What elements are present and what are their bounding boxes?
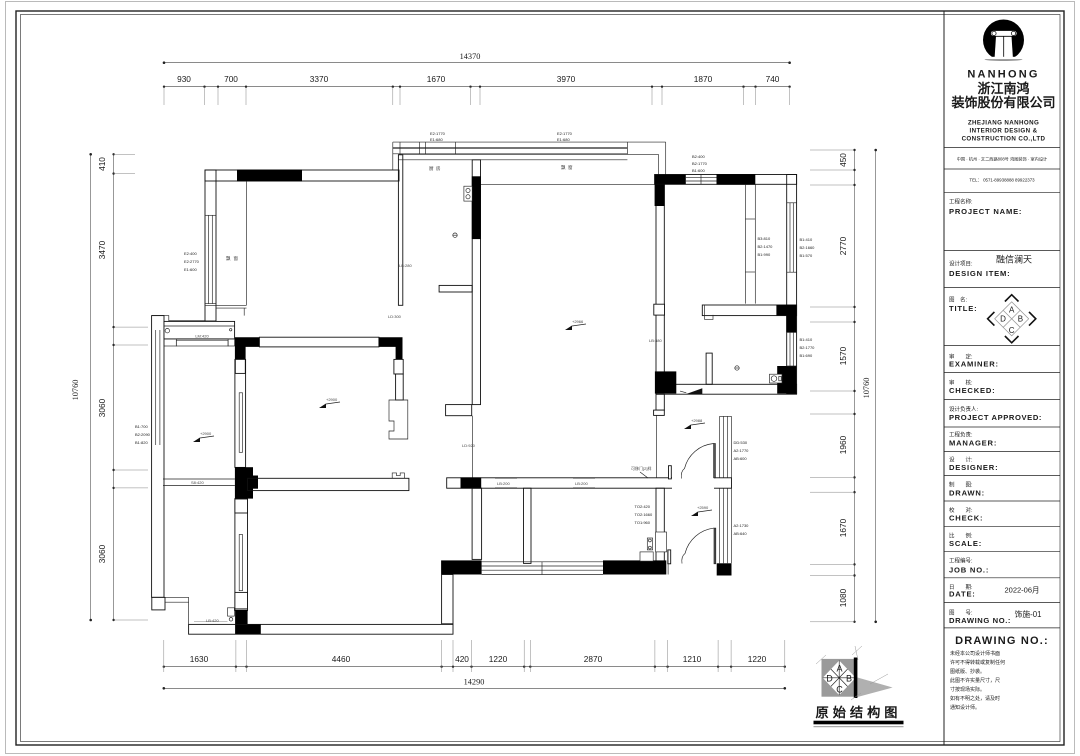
svg-text:450: 450 <box>838 153 848 167</box>
svg-text:LB:420: LB:420 <box>206 618 219 623</box>
svg-text:A: A <box>1009 306 1015 315</box>
svg-text:3970: 3970 <box>557 74 576 84</box>
svg-text:930: 930 <box>177 74 191 84</box>
svg-text:D: D <box>826 674 833 684</box>
svg-text:厨: 厨 <box>429 166 434 171</box>
svg-text:TITLE:: TITLE: <box>949 304 977 313</box>
svg-text:通知设计师。: 通知设计师。 <box>950 704 980 711</box>
svg-text:TO1:960: TO1:960 <box>635 520 651 525</box>
svg-text:NANHONG: NANHONG <box>967 69 1039 81</box>
svg-text:JOB NO.:: JOB NO.: <box>949 566 989 575</box>
svg-text:窗: 窗 <box>234 255 239 262</box>
svg-text:B1:690: B1:690 <box>800 353 813 358</box>
svg-text:B2:400: B2:400 <box>692 154 705 159</box>
svg-text:装饰股份有限公司: 装饰股份有限公司 <box>950 95 1055 110</box>
svg-text:1630: 1630 <box>190 654 209 664</box>
svg-text:+2900: +2900 <box>200 431 212 436</box>
svg-text:1220: 1220 <box>748 654 767 664</box>
svg-text:TO2:1660: TO2:1660 <box>635 512 653 517</box>
svg-text:EXAMINER:: EXAMINER: <box>949 360 999 369</box>
svg-text:14370: 14370 <box>460 52 481 61</box>
svg-text:AB:600: AB:600 <box>734 456 748 461</box>
svg-text:DESIGN ITEM:: DESIGN ITEM: <box>949 269 1011 278</box>
svg-text:DRAWN:: DRAWN: <box>949 489 985 498</box>
svg-text:B1:990: B1:990 <box>758 252 771 257</box>
svg-text:PROJECT APPROVED:: PROJECT APPROVED: <box>949 413 1042 422</box>
svg-text:DATE:: DATE: <box>949 590 976 599</box>
svg-text:+2900: +2900 <box>326 397 338 402</box>
svg-text:原始结构图: 原始结构图 <box>816 704 902 720</box>
svg-text:浙江南鸿: 浙江南鸿 <box>977 81 1029 96</box>
svg-text:B2:2090: B2:2090 <box>135 432 151 437</box>
svg-text:4460: 4460 <box>332 654 351 664</box>
svg-text:图纸版、抄袭。: 图纸版、抄袭。 <box>950 668 985 675</box>
svg-text:1960: 1960 <box>838 435 848 454</box>
svg-text:LB:380: LB:380 <box>649 338 662 343</box>
svg-text:此图不许实量尺寸，尺: 此图不许实量尺寸，尺 <box>950 677 1000 684</box>
svg-text:设计负责人:: 设计负责人: <box>949 405 979 413</box>
svg-text:B2:1770: B2:1770 <box>692 161 708 166</box>
svg-text:E2:400: E2:400 <box>184 251 197 256</box>
svg-text:E1:600: E1:600 <box>184 267 197 272</box>
svg-text:DRAWING NO.:: DRAWING NO.: <box>949 616 1011 625</box>
svg-text:700: 700 <box>224 74 238 84</box>
svg-text:B2:1660: B2:1660 <box>800 245 816 250</box>
svg-text:中国 · 杭州 · 文二西路808号 鸿图装饰 · 室内设计: 中国 · 杭州 · 文二西路808号 鸿图装饰 · 室内设计 <box>957 156 1048 163</box>
svg-text:+2988: +2988 <box>691 418 703 423</box>
svg-text:14290: 14290 <box>464 678 485 687</box>
svg-text:B: B <box>846 674 852 684</box>
svg-text:B1:570: B1:570 <box>800 253 813 258</box>
svg-text:可移门[2]样: 可移门[2]样 <box>631 465 651 471</box>
svg-text:B3:810: B3:810 <box>758 236 771 241</box>
svg-text:B2:1470: B2:1470 <box>758 244 774 249</box>
svg-text:工程负责:: 工程负责: <box>949 431 973 439</box>
svg-text:410: 410 <box>97 157 107 171</box>
svg-text:A2:1770: A2:1770 <box>734 448 750 453</box>
svg-text:窗: 窗 <box>568 164 573 171</box>
svg-text:+2590: +2590 <box>697 505 709 510</box>
svg-text:工程名称:: 工程名称: <box>949 198 973 206</box>
svg-text:1870: 1870 <box>694 74 713 84</box>
svg-text:3370: 3370 <box>310 74 329 84</box>
svg-text:10760: 10760 <box>862 378 871 399</box>
svg-text:B1:820: B1:820 <box>135 440 148 445</box>
svg-text:DESIGNER:: DESIGNER: <box>949 463 998 472</box>
svg-text:3060: 3060 <box>97 398 107 417</box>
svg-text:2770: 2770 <box>838 236 848 255</box>
svg-text:B2:1770: B2:1770 <box>800 345 816 350</box>
svg-text:许可不得转载或复制任何: 许可不得转载或复制任何 <box>950 659 1005 666</box>
svg-text:+2966: +2966 <box>572 319 584 324</box>
svg-text:AB:640: AB:640 <box>734 531 748 536</box>
svg-text:DD:530: DD:530 <box>734 440 748 445</box>
svg-text:TO2:420: TO2:420 <box>635 504 651 509</box>
svg-text:1670: 1670 <box>838 518 848 537</box>
svg-text:3060: 3060 <box>97 544 107 563</box>
svg-text:SCALE:: SCALE: <box>949 539 982 548</box>
svg-text:E1:680: E1:680 <box>430 137 443 142</box>
svg-text:CONSTRUCTION CO.,LTD: CONSTRUCTION CO.,LTD <box>962 136 1046 143</box>
svg-text:CHECK:: CHECK: <box>949 514 983 523</box>
svg-text:制 图:: 制 图: <box>949 481 973 489</box>
svg-text:E1:680: E1:680 <box>557 137 570 142</box>
svg-text:B1:700: B1:700 <box>135 424 148 429</box>
svg-text:1220: 1220 <box>489 654 508 664</box>
svg-text:D: D <box>1000 315 1006 324</box>
svg-text:PROJECT NAME:: PROJECT NAME: <box>949 207 1022 216</box>
svg-text:LB:200: LB:200 <box>575 481 588 486</box>
svg-text:E2:2770: E2:2770 <box>184 259 200 264</box>
svg-text:饰施-01: 饰施-01 <box>1015 609 1042 619</box>
svg-text:B1:410: B1:410 <box>800 337 813 342</box>
svg-text:1670: 1670 <box>427 74 446 84</box>
svg-text:E2:1770: E2:1770 <box>430 131 446 136</box>
svg-text:1080: 1080 <box>838 588 848 607</box>
svg-text:3470: 3470 <box>97 240 107 259</box>
svg-text:寸按现场实际。: 寸按现场实际。 <box>950 686 985 693</box>
svg-text:E2:1770: E2:1770 <box>557 131 573 136</box>
svg-text:TEL： 0571-89938888 89922373: TEL： 0571-89938888 89922373 <box>969 178 1035 183</box>
svg-text:工程编号:: 工程编号: <box>949 557 973 565</box>
svg-text:设计项目:: 设计项目: <box>949 260 973 268</box>
svg-text:LM:420: LM:420 <box>195 334 209 339</box>
svg-text:CHECKED:: CHECKED: <box>949 386 995 395</box>
svg-text:如有不明之处，请及时: 如有不明之处，请及时 <box>950 695 1000 702</box>
svg-text:LD:920: LD:920 <box>462 443 476 448</box>
svg-text:ZHEJIANG NANHONG: ZHEJIANG NANHONG <box>968 120 1039 127</box>
svg-text:C: C <box>1009 326 1015 335</box>
svg-text:DRAWING NO.:: DRAWING NO.: <box>955 635 1049 647</box>
svg-text:房: 房 <box>436 165 441 172</box>
svg-text:S8:420: S8:420 <box>191 480 204 485</box>
svg-text:INTERIOR DESIGN &: INTERIOR DESIGN & <box>970 128 1038 135</box>
svg-text:图 名:: 图 名: <box>949 296 968 304</box>
svg-text:2022-06月: 2022-06月 <box>1004 586 1039 595</box>
svg-text:融信澜天: 融信澜天 <box>996 254 1032 265</box>
svg-text:B1:600: B1:600 <box>692 168 705 173</box>
svg-text:LB:280: LB:280 <box>399 263 412 268</box>
svg-text:B1:410: B1:410 <box>800 237 813 242</box>
svg-text:1210: 1210 <box>683 654 702 664</box>
svg-text:LD:300: LD:300 <box>388 314 402 319</box>
svg-text:MANAGER:: MANAGER: <box>949 439 997 448</box>
svg-text:10760: 10760 <box>71 380 80 401</box>
svg-text:2870: 2870 <box>584 654 603 664</box>
svg-text:B: B <box>1018 315 1023 324</box>
svg-text:A: A <box>836 664 842 674</box>
svg-text:1570: 1570 <box>838 346 848 365</box>
svg-text:A2:1730: A2:1730 <box>734 523 750 528</box>
svg-text:420: 420 <box>455 654 469 664</box>
svg-text:C: C <box>836 685 843 695</box>
svg-text:未经本公司设计师书面: 未经本公司设计师书面 <box>950 650 1000 657</box>
svg-text:LB:200: LB:200 <box>497 481 510 486</box>
svg-text:740: 740 <box>766 74 780 84</box>
